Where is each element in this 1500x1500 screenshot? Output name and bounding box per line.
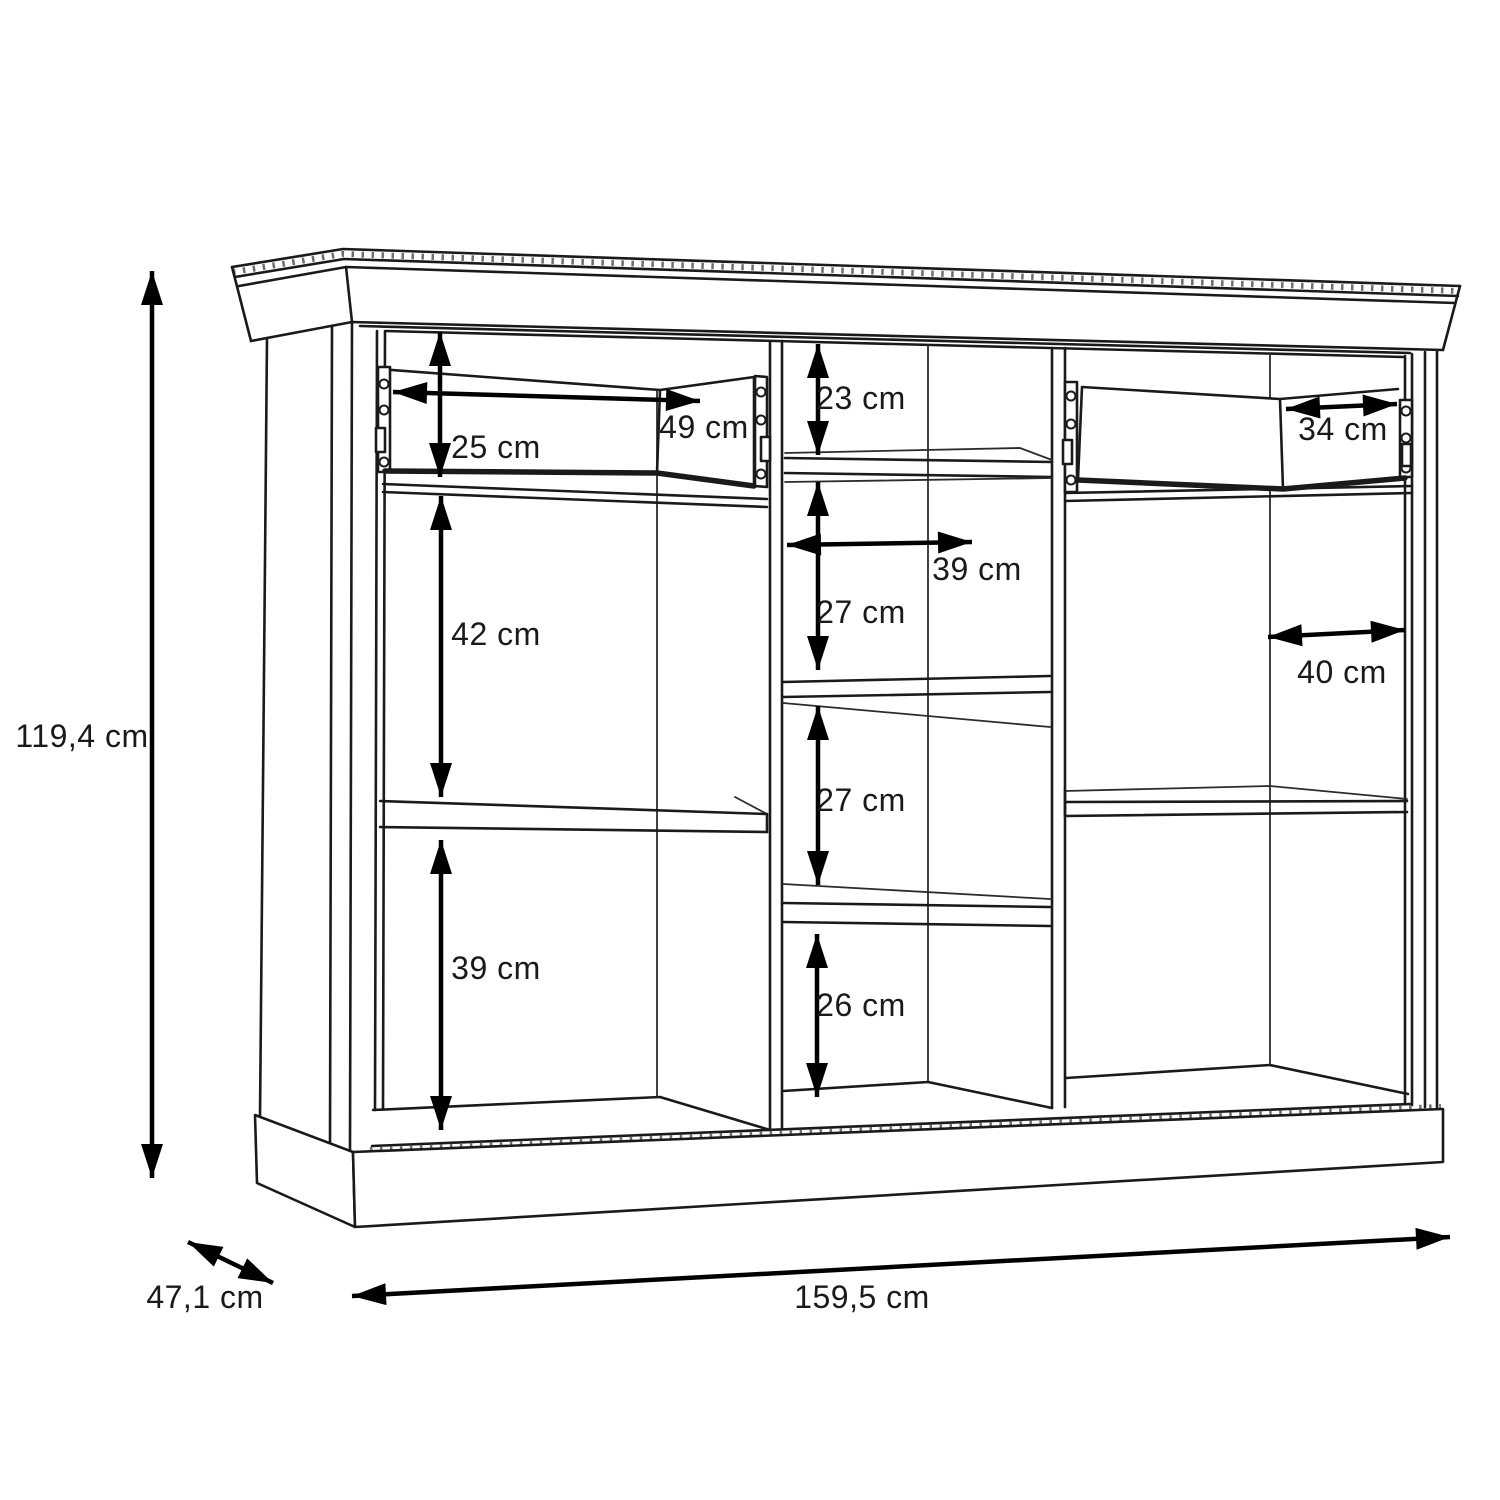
dim-arrow-right-drawer-width — [1286, 404, 1397, 409]
crown-molding — [232, 249, 1460, 350]
dim-label-left-drawer-height: 25 cm — [451, 431, 541, 463]
plinth-base — [255, 1107, 1443, 1227]
dim-label-left-bottom-space: 39 cm — [451, 952, 541, 984]
dim-arrow-mid-width — [787, 542, 972, 545]
diagram-canvas: 119,4 cm 47,1 cm 159,5 cm 25 cm 49 cm 42… — [0, 0, 1500, 1500]
dim-label-mid-upper-space: 27 cm — [816, 596, 906, 628]
middle-shelf-mid — [783, 676, 1050, 727]
dim-label-mid-top-space: 23 cm — [816, 382, 906, 414]
dim-arrow-depth — [188, 1242, 273, 1283]
dim-label-height: 119,4 cm — [15, 720, 148, 752]
dim-label-width: 159,5 cm — [794, 1281, 930, 1313]
dim-label-right-width: 40 cm — [1297, 656, 1387, 688]
middle-shelf-low — [783, 884, 1050, 926]
dim-label-left-middle-space: 42 cm — [451, 618, 541, 650]
cabinet-line-drawing — [0, 0, 1500, 1500]
middle-shelf-top — [785, 448, 1052, 482]
dim-arrow-right-width — [1268, 630, 1405, 637]
left-shelf — [380, 797, 767, 832]
right-shelf — [1065, 786, 1407, 816]
dim-label-mid-width: 39 cm — [932, 553, 1022, 585]
dim-label-right-drawer-width: 34 cm — [1298, 413, 1388, 445]
dim-label-depth: 47,1 cm — [146, 1281, 263, 1313]
dim-label-mid-bottom-space: 26 cm — [816, 989, 906, 1021]
dim-label-mid-lower-space: 27 cm — [816, 784, 906, 816]
dim-label-left-drawer-width: 49 cm — [659, 411, 749, 443]
